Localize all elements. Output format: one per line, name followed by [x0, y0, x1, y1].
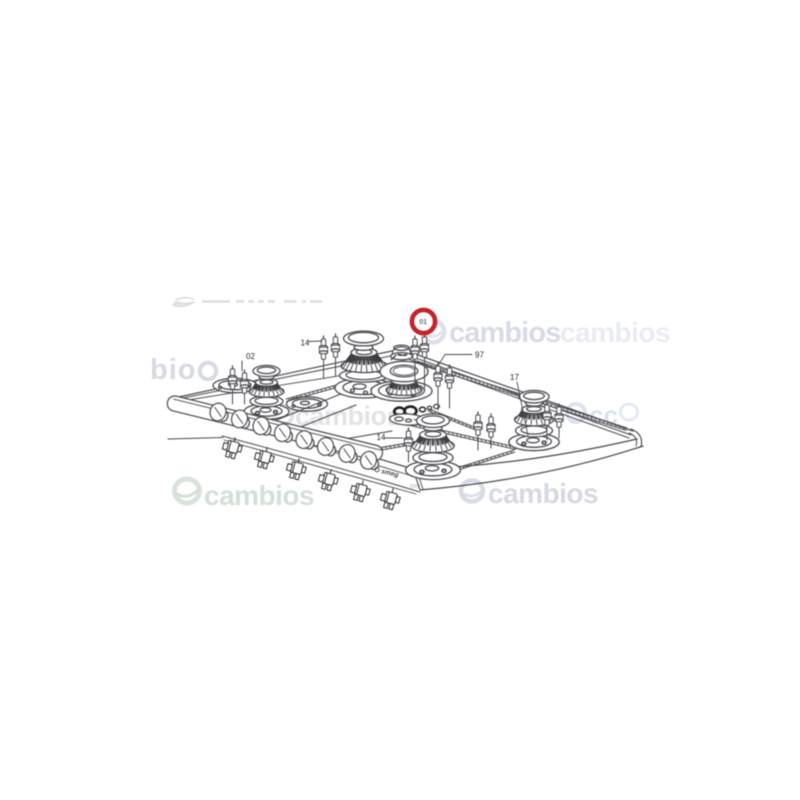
svg-text:cambios: cambios — [560, 317, 670, 348]
svg-text:bio: bio — [150, 354, 197, 386]
svg-text:02: 02 — [246, 352, 255, 361]
svg-text:14: 14 — [301, 338, 310, 347]
svg-text:97: 97 — [475, 351, 484, 360]
svg-text:cambios: cambios — [204, 480, 314, 511]
svg-text:cambios: cambios — [449, 317, 560, 349]
svg-text:14: 14 — [377, 433, 386, 442]
svg-text:01: 01 — [419, 317, 427, 326]
svg-text:cambios: cambios — [488, 478, 598, 509]
svg-text:17: 17 — [510, 373, 519, 382]
